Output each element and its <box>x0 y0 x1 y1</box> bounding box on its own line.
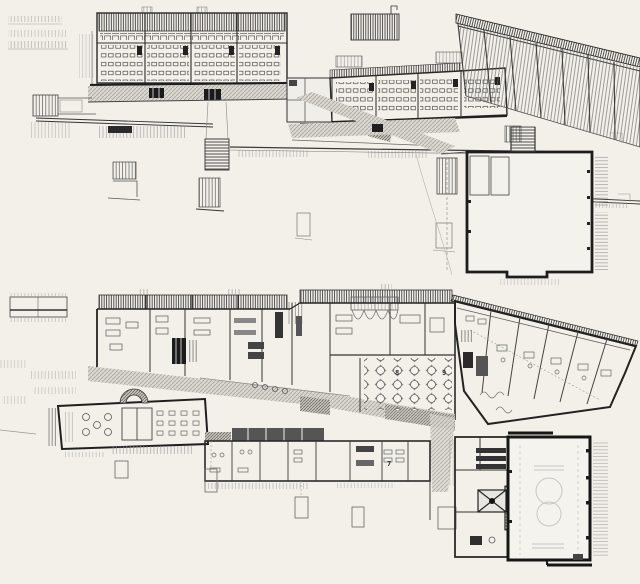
locker-row <box>100 33 284 40</box>
stair-core <box>149 88 164 98</box>
room-number-label: 8 <box>395 369 399 377</box>
roof-monitor <box>336 56 362 67</box>
stair-core <box>204 89 221 100</box>
exterior-stair <box>199 178 220 207</box>
hall-walls <box>467 152 592 277</box>
roof-monitor <box>436 52 462 63</box>
slope-hatching <box>593 440 608 558</box>
classroom-block <box>79 7 295 102</box>
locker-benches <box>476 448 506 469</box>
dining-round-tables <box>364 358 452 410</box>
exterior-stair <box>113 162 136 179</box>
skylight-hatch-band <box>99 13 285 31</box>
room-number-label: 9 <box>442 369 446 377</box>
room-number-label: 7 <box>387 460 391 468</box>
site-hatch-marks <box>8 16 68 49</box>
small-tables <box>156 408 202 440</box>
stair-core <box>172 338 186 364</box>
slope-hatching <box>595 155 608 207</box>
slope-hatching <box>595 212 608 270</box>
exterior-stair <box>205 139 229 170</box>
hall-stair <box>511 127 535 152</box>
floor-plan-drawing: 8 9 <box>0 0 640 584</box>
scanned-drawing-page: 8 9 <box>0 0 640 584</box>
gymnasium <box>508 433 608 565</box>
dark-service-band <box>232 428 324 441</box>
